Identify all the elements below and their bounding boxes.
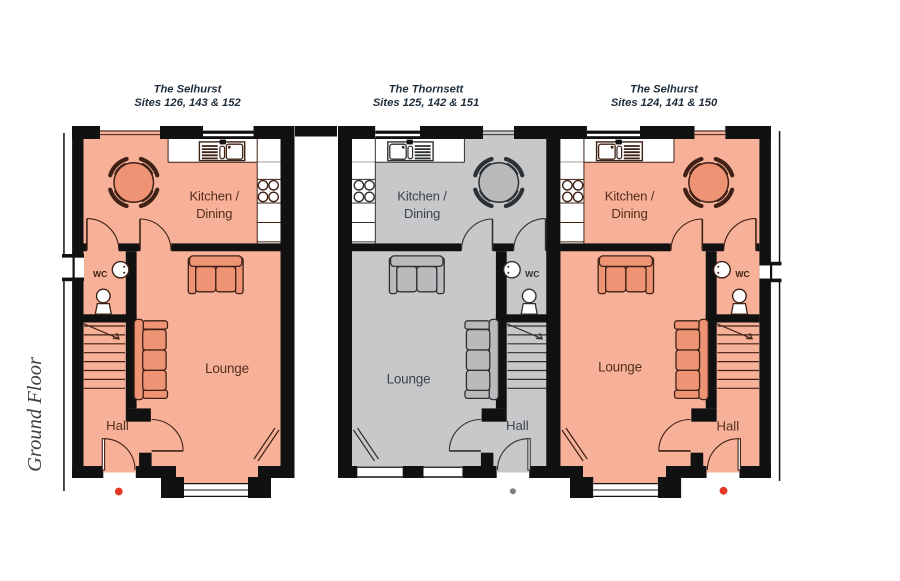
- svg-text:The Selhurst: The Selhurst: [154, 84, 223, 96]
- svg-text:Dining: Dining: [404, 206, 440, 221]
- svg-text:The Thornsett: The Thornsett: [389, 84, 465, 96]
- svg-text:Sites 124, 141 & 150: Sites 124, 141 & 150: [611, 97, 718, 109]
- svg-text:Sites 125, 142 & 151: Sites 125, 142 & 151: [373, 97, 479, 109]
- svg-text:Kitchen /: Kitchen /: [397, 189, 447, 204]
- svg-text:WC: WC: [525, 269, 539, 279]
- svg-text:Sites 126, 143 & 152: Sites 126, 143 & 152: [134, 97, 241, 109]
- svg-text:Lounge: Lounge: [598, 360, 642, 375]
- svg-text:Hall: Hall: [716, 419, 739, 434]
- svg-text:Kitchen /: Kitchen /: [189, 189, 239, 204]
- svg-text:Dining: Dining: [611, 206, 647, 221]
- svg-text:The Selhurst: The Selhurst: [630, 84, 699, 96]
- svg-text:Lounge: Lounge: [387, 371, 431, 386]
- svg-text:Dining: Dining: [196, 206, 232, 221]
- svg-text:WC: WC: [93, 269, 107, 279]
- svg-text:Hall: Hall: [506, 418, 529, 433]
- svg-text:Kitchen /: Kitchen /: [605, 189, 655, 204]
- svg-text:Ground Floor: Ground Floor: [24, 356, 46, 472]
- svg-text:Hall: Hall: [106, 418, 129, 433]
- svg-text:WC: WC: [735, 269, 749, 279]
- svg-text:Lounge: Lounge: [205, 361, 249, 376]
